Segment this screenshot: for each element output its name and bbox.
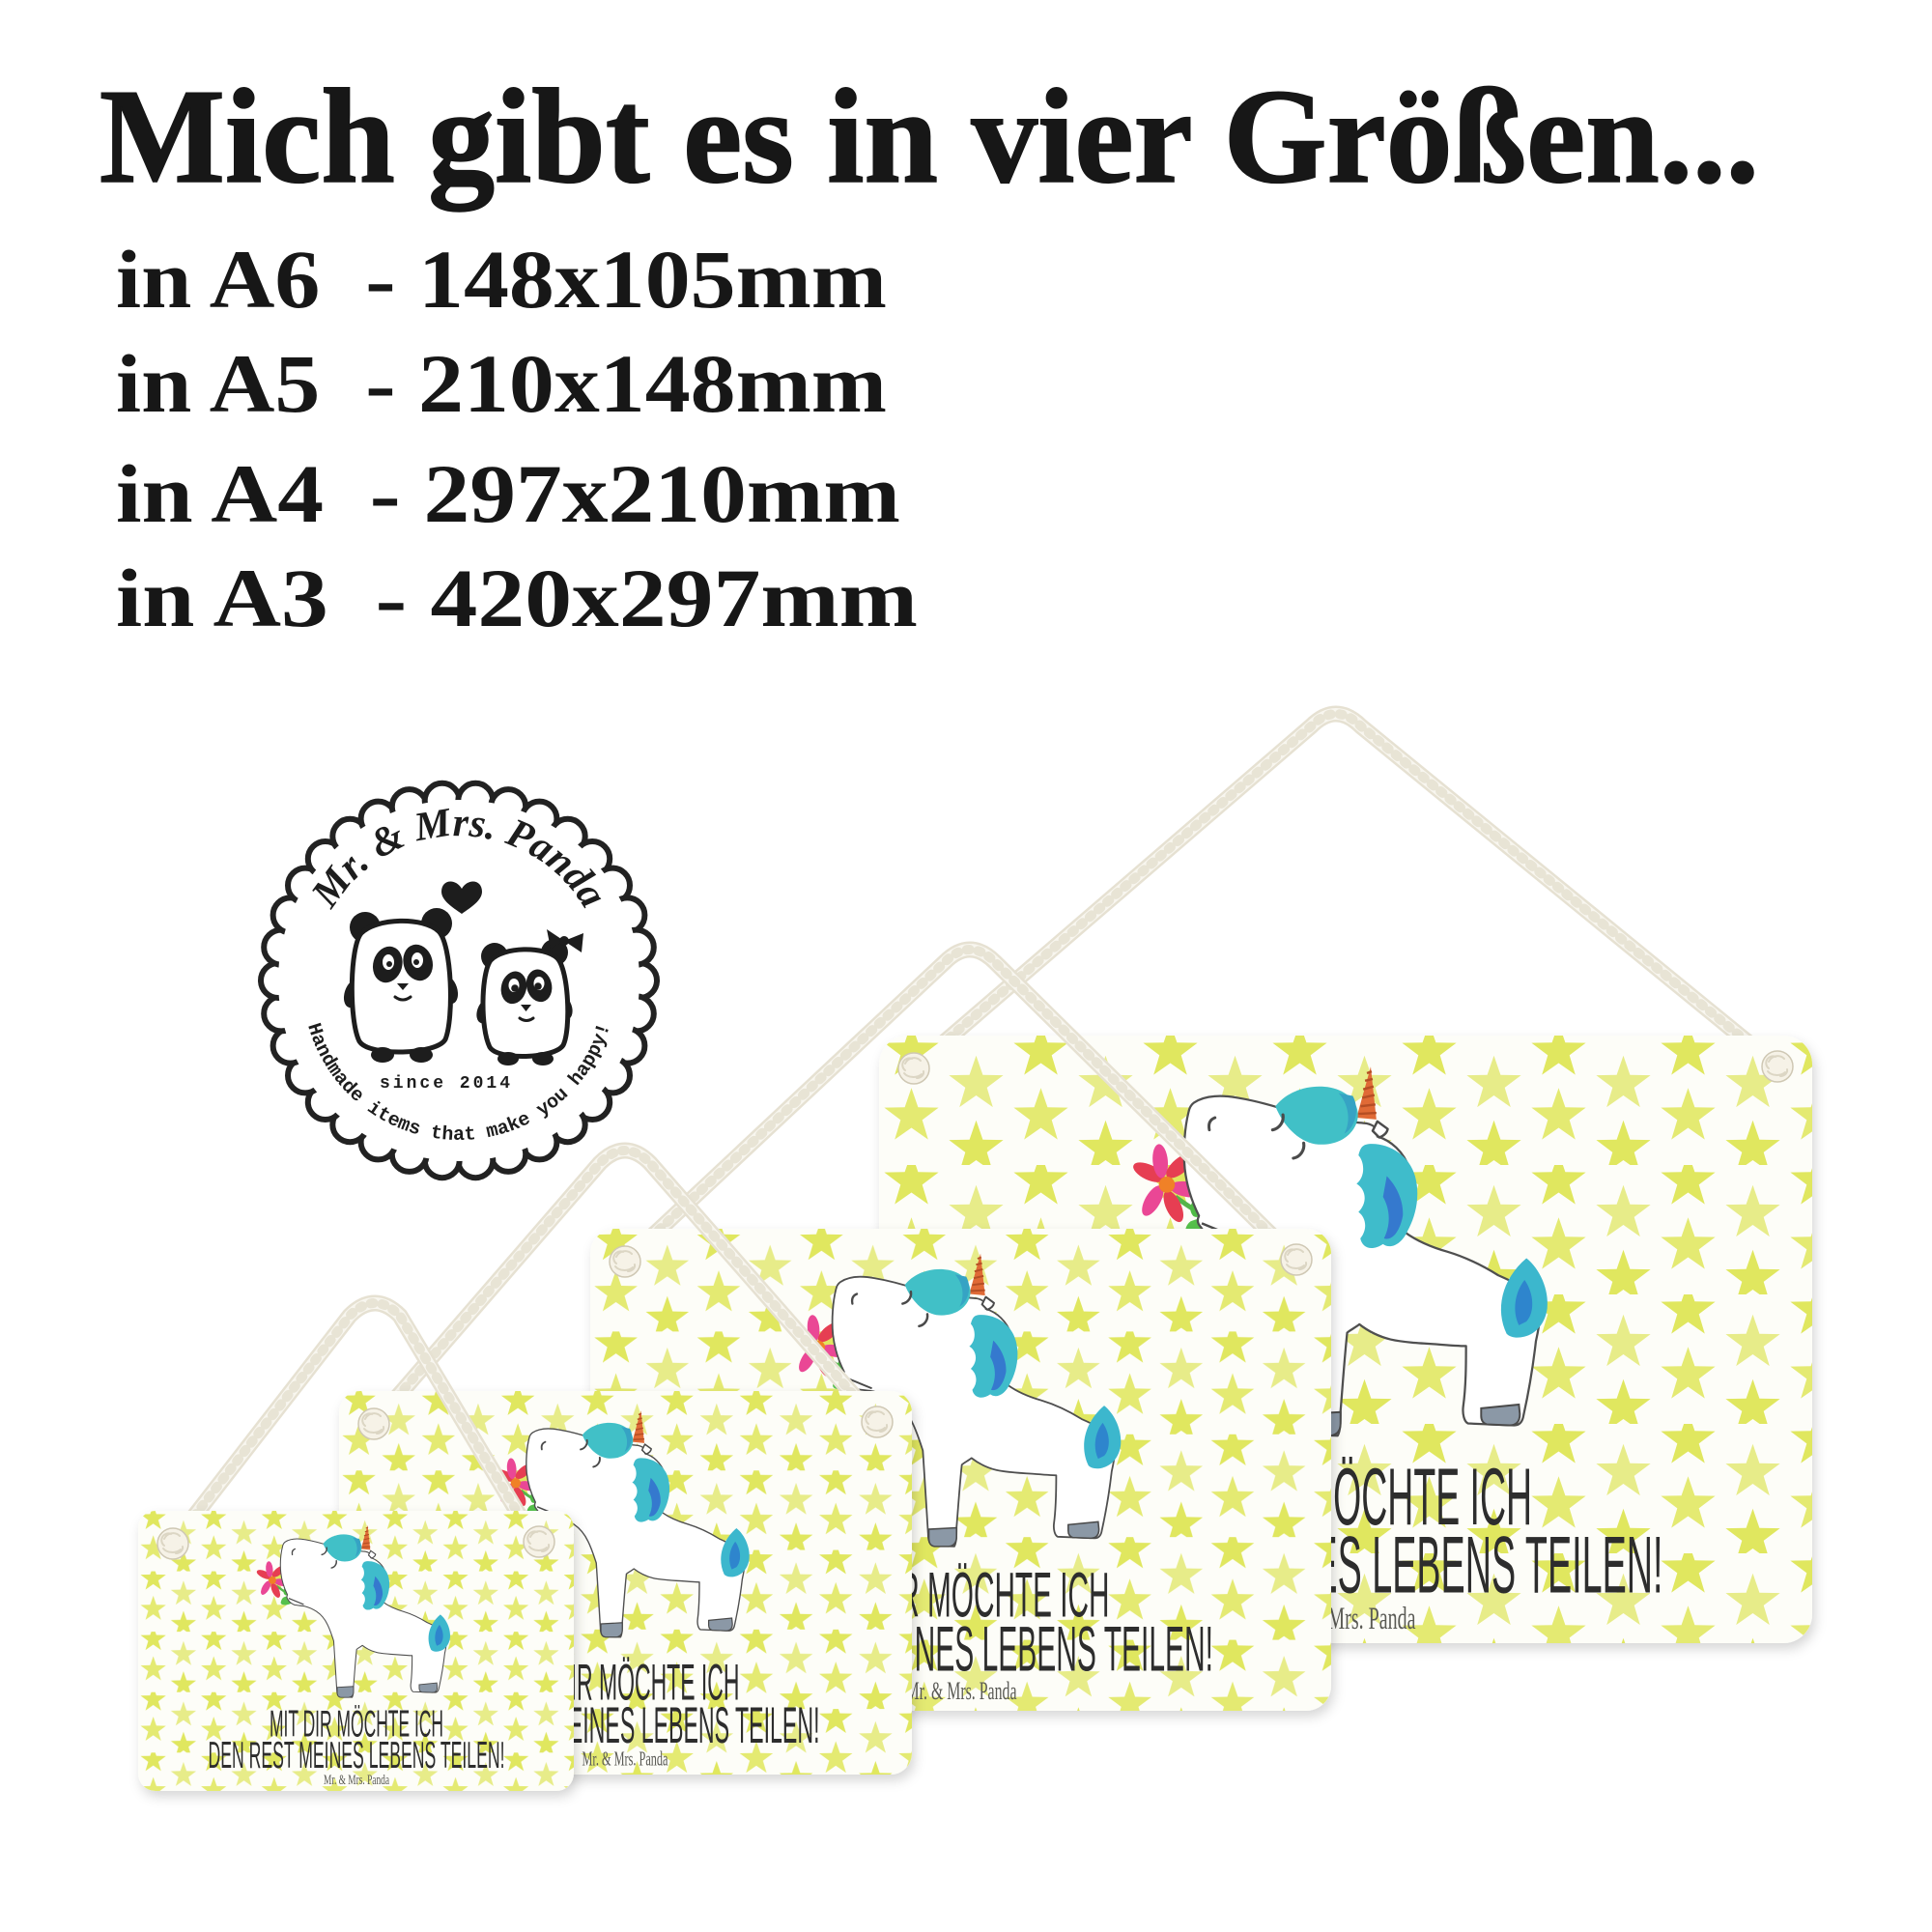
svg-text:in A4 - 297x210mm: in A4 - 297x210mm [116, 447, 900, 540]
svg-text:Mich gibt es in vier Größen...: Mich gibt es in vier Größen... [99, 62, 1759, 212]
svg-text:since 2014: since 2014 [380, 1074, 513, 1094]
svg-text:in A5 - 210x148mm: in A5 - 210x148mm [116, 337, 887, 430]
svg-text:in A3 - 420x297mm: in A3 - 420x297mm [116, 552, 918, 644]
svg-text:Mr. & Mrs. Panda: Mr. & Mrs. Panda [582, 1749, 668, 1771]
svg-text:in A6 - 148x105mm: in A6 - 148x105mm [116, 233, 887, 326]
svg-text:DEN REST MEINES LEBENS TEILEN!: DEN REST MEINES LEBENS TEILEN! [209, 1735, 505, 1776]
svg-text:Mr. & Mrs. Panda: Mr. & Mrs. Panda [324, 1773, 389, 1788]
svg-text:Mr. & Mrs. Panda: Mr. & Mrs. Panda [906, 1677, 1017, 1705]
